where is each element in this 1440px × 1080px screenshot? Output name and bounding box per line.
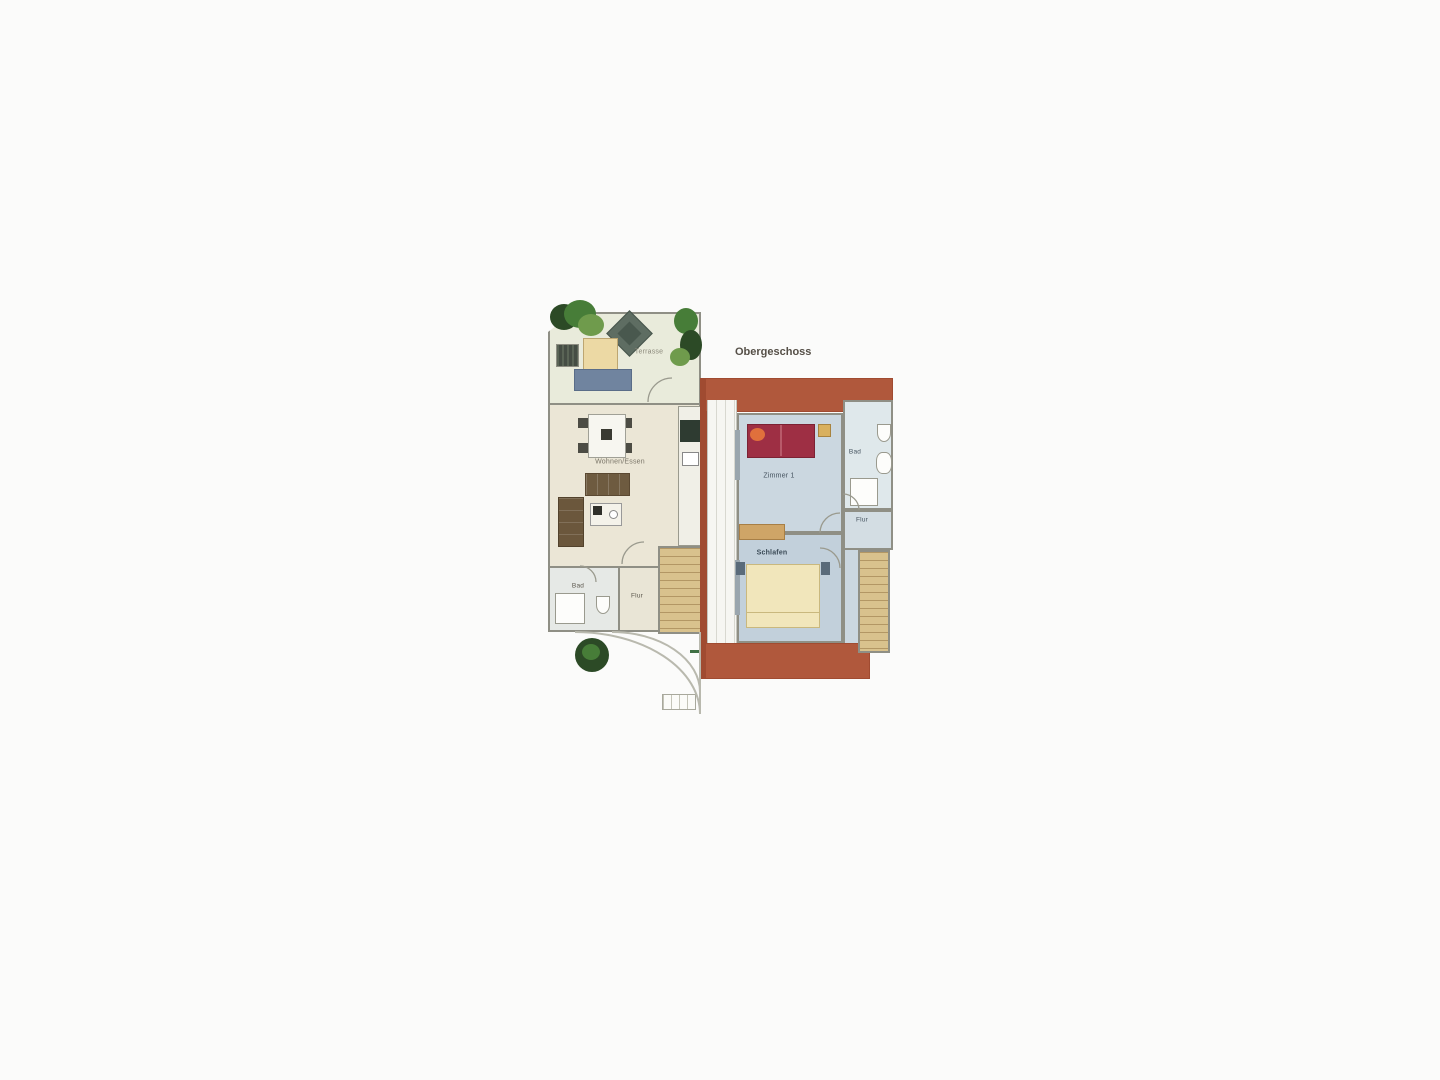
bed-foot-line [747, 612, 819, 613]
sink-icon [609, 510, 618, 519]
roof-band-bottom [705, 643, 870, 679]
double-bed [746, 564, 820, 628]
hall-og [843, 510, 893, 550]
grill-icon [556, 344, 579, 367]
bath-og-label: Bad [849, 449, 861, 456]
bedroom-label: Schlafen [757, 550, 788, 557]
bath-eg-label: Bad [572, 583, 584, 590]
entry-step [662, 694, 696, 710]
balcony-strip [707, 400, 737, 643]
shower-icon [850, 478, 878, 506]
shower-icon [555, 593, 585, 624]
ground-floor-plan: Terrasse Wohnen/Essen Bad Flur [540, 300, 715, 720]
upper-floor-title: Obergeschoss [735, 346, 811, 358]
tree-icon [670, 348, 690, 366]
dining-table-center [601, 429, 612, 440]
pillow-icon [750, 428, 765, 441]
window-icon [735, 430, 740, 480]
terrace-label: Terrasse [635, 349, 663, 356]
living-label: Wohnen/Essen [595, 459, 645, 466]
hall-og-label: Flur [856, 517, 868, 524]
nightstand [821, 562, 830, 575]
tree-icon [578, 314, 604, 336]
toilet-icon [596, 596, 610, 614]
kitchen-wall-unit [558, 497, 584, 547]
floorplan-stage: Terrasse Wohnen/Essen Bad Flur Obergesch… [0, 0, 1440, 1080]
kitchen-island [585, 473, 630, 496]
blanket-line [780, 425, 782, 456]
sink-icon [876, 452, 892, 474]
hob-icon [593, 506, 602, 515]
nightstand [818, 424, 831, 437]
hall-eg-label: Flur [631, 593, 643, 600]
nightstand [736, 562, 745, 575]
lounger [574, 369, 632, 391]
room1-label: Zimmer 1 [763, 473, 794, 480]
upper-floor-plan: Obergeschoss Zimmer 1 Ba [695, 340, 905, 685]
stairs-og [858, 550, 890, 653]
sideboard [739, 524, 785, 540]
bush-icon [582, 644, 600, 660]
toilet-icon [877, 424, 891, 442]
